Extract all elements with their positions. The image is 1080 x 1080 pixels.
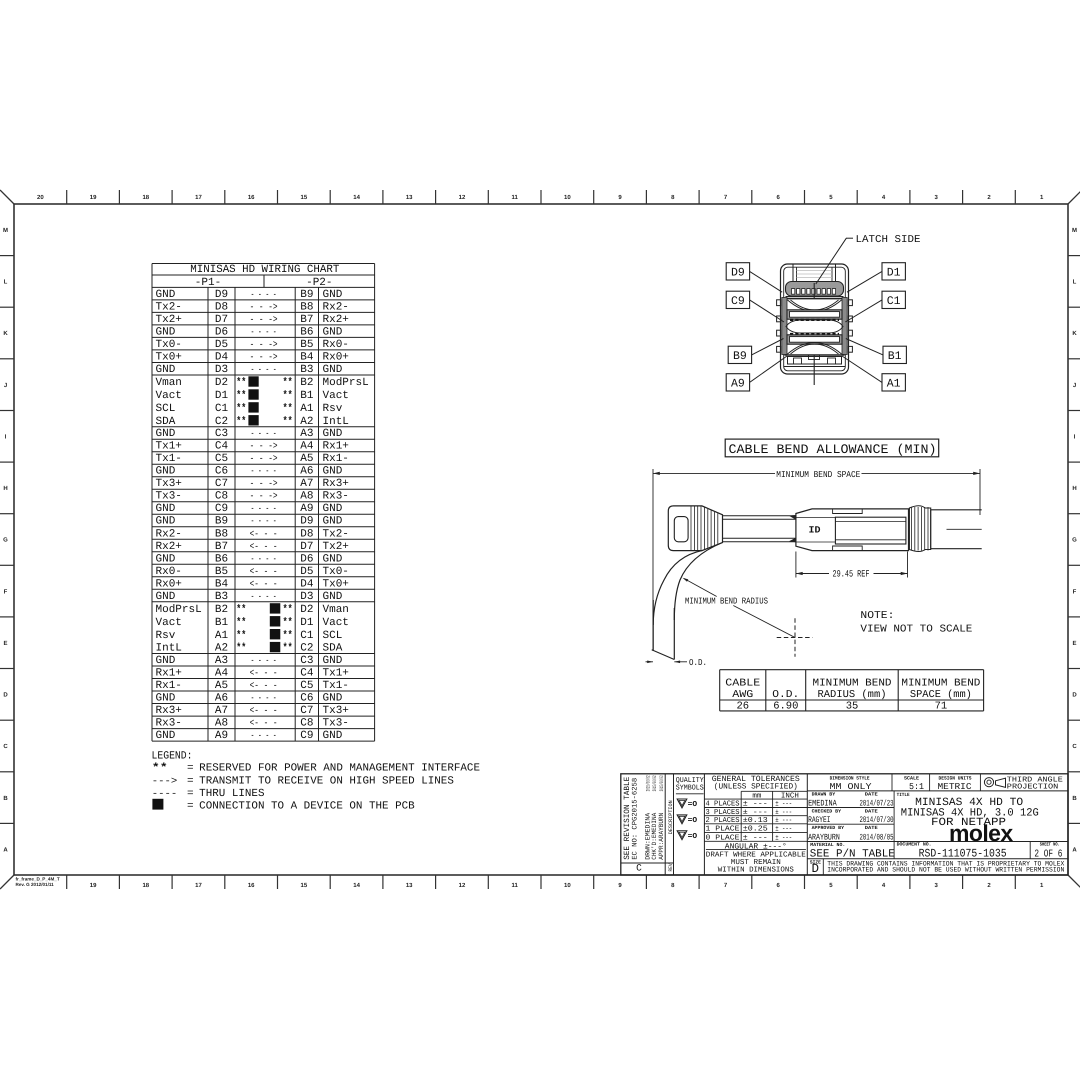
svg-text:GND: GND xyxy=(156,655,176,667)
svg-text:B3: B3 xyxy=(215,591,228,603)
svg-text:A2: A2 xyxy=(215,643,228,655)
svg-text:- - ->: - - -> xyxy=(250,340,278,351)
svg-text:B8: B8 xyxy=(215,528,228,540)
svg-text:19: 19 xyxy=(90,882,97,889)
svg-text:D2: D2 xyxy=(300,604,313,616)
svg-text:Vact: Vact xyxy=(156,390,182,402)
svg-text:11: 11 xyxy=(512,194,519,201)
svg-text:10: 10 xyxy=(564,194,571,201)
svg-text:- - ->: - - -> xyxy=(250,353,278,364)
svg-text:D1: D1 xyxy=(887,267,901,280)
svg-text:Vact: Vact xyxy=(156,617,182,629)
svg-text:B3: B3 xyxy=(300,364,313,376)
svg-text:GND: GND xyxy=(323,553,343,565)
svg-text:(UNLESS SPECIFIED): (UNLESS SPECIFIED) xyxy=(714,782,798,791)
svg-text:C3: C3 xyxy=(300,655,313,667)
svg-text:H: H xyxy=(1072,485,1076,492)
svg-text:GND: GND xyxy=(156,553,176,565)
svg-text:MINIMUM BEND SPACE: MINIMUM BEND SPACE xyxy=(776,470,860,480)
svg-text:**: ** xyxy=(236,390,246,402)
svg-text:C6: C6 xyxy=(215,466,228,478)
svg-text:C: C xyxy=(1072,743,1077,750)
svg-text:D7: D7 xyxy=(300,541,313,553)
svg-text:2014/07/23: 2014/07/23 xyxy=(860,798,894,808)
svg-text:- - - -: - - - - xyxy=(251,656,277,667)
svg-text:APPROVED BY: APPROVED BY xyxy=(812,825,845,831)
svg-text:A8: A8 xyxy=(300,491,313,503)
svg-text:**: ** xyxy=(152,763,168,775)
svg-text:**: ** xyxy=(283,403,293,415)
svg-text:D9: D9 xyxy=(731,267,745,280)
svg-text:D1: D1 xyxy=(215,390,229,402)
svg-text:B2: B2 xyxy=(300,377,313,389)
svg-text:B2: B2 xyxy=(215,604,228,616)
svg-text:A9: A9 xyxy=(300,503,313,515)
svg-text:29.45 REF: 29.45 REF xyxy=(833,569,870,580)
svg-text:A1: A1 xyxy=(887,378,901,391)
svg-text:- - ->: - - -> xyxy=(250,302,278,313)
svg-text:**: ** xyxy=(283,390,293,402)
svg-text:A5: A5 xyxy=(215,680,228,692)
svg-text:C9: C9 xyxy=(215,503,228,515)
svg-text:A6: A6 xyxy=(300,466,313,478)
svg-text:--->: ---> xyxy=(152,776,178,787)
svg-text:- - - -: - - - - xyxy=(251,429,277,440)
svg-text:2 OF 6: 2 OF 6 xyxy=(1034,849,1062,861)
svg-text:±0.13: ±0.13 xyxy=(743,816,769,825)
svg-text:18: 18 xyxy=(142,882,149,889)
svg-text:SCL: SCL xyxy=(156,403,176,415)
svg-text:B: B xyxy=(3,795,8,802)
svg-text:± ---: ± --- xyxy=(743,801,768,809)
svg-text:LEGEND:: LEGEND: xyxy=(152,750,193,762)
svg-text:2014/07/30: 2014/07/30 xyxy=(860,815,894,825)
svg-text:2015/06/02: 2015/06/02 xyxy=(652,775,658,791)
svg-text:<- - -: <- - - xyxy=(250,542,278,553)
svg-text:D: D xyxy=(812,862,820,876)
svg-text:Tx0+: Tx0+ xyxy=(156,352,182,364)
svg-text:B7: B7 xyxy=(215,541,228,553)
svg-text:- - - -: - - - - xyxy=(251,327,277,338)
svg-text:- - ->: - - -> xyxy=(250,442,278,453)
svg-text:O.D.: O.D. xyxy=(689,658,707,668)
svg-text:C1: C1 xyxy=(215,403,229,415)
svg-text:Tx1+: Tx1+ xyxy=(323,668,349,680)
svg-text:REV: REV xyxy=(668,863,674,872)
svg-text:Rsv: Rsv xyxy=(156,630,176,642)
svg-text:Tx3+: Tx3+ xyxy=(323,705,349,717)
svg-text:26: 26 xyxy=(736,701,749,713)
svg-text:M: M xyxy=(1072,227,1077,234)
svg-text:Rx2+: Rx2+ xyxy=(323,314,349,326)
svg-text:=: = xyxy=(187,763,194,775)
svg-text:GND: GND xyxy=(323,693,343,705)
svg-text:B9: B9 xyxy=(300,289,313,301)
svg-text:A1: A1 xyxy=(300,403,314,415)
svg-text:GND: GND xyxy=(323,428,343,440)
svg-text:DATE: DATE xyxy=(865,808,878,814)
svg-text:19: 19 xyxy=(90,194,97,201)
svg-text:Tx0+: Tx0+ xyxy=(323,578,349,590)
svg-text:GND: GND xyxy=(156,591,176,603)
svg-text:DRAWN BY: DRAWN BY xyxy=(812,792,836,798)
svg-text:2014/08/05: 2014/08/05 xyxy=(860,832,894,842)
svg-text:Rev. G 2012/01/11: Rev. G 2012/01/11 xyxy=(16,882,55,887)
svg-text:fr_frame_D_P_4M_T: fr_frame_D_P_4M_T xyxy=(16,877,60,882)
svg-text:- - - -: - - - - xyxy=(251,467,277,478)
svg-text:0 PLACE: 0 PLACE xyxy=(706,834,741,843)
svg-text:C8: C8 xyxy=(300,718,313,730)
svg-text:14: 14 xyxy=(353,882,360,889)
svg-text:CHECKED BY: CHECKED BY xyxy=(812,808,842,814)
svg-text:<- - -: <- - - xyxy=(250,579,278,590)
svg-text:D6: D6 xyxy=(300,553,313,565)
svg-text:1 PLACE: 1 PLACE xyxy=(706,825,741,834)
svg-text:Rx1-: Rx1- xyxy=(156,680,182,692)
svg-text:A: A xyxy=(3,846,8,853)
svg-text:Rx2-: Rx2- xyxy=(323,301,349,313)
svg-text:TRANSMIT TO RECEIVE ON HIGH SP: TRANSMIT TO RECEIVE ON HIGH SPEED LINES xyxy=(199,775,454,787)
svg-text:GND: GND xyxy=(323,730,343,742)
svg-text:ModPrsL: ModPrsL xyxy=(323,377,369,389)
svg-text:- - - -: - - - - xyxy=(251,554,277,565)
svg-text:17: 17 xyxy=(195,194,202,201)
svg-text:± ---: ± --- xyxy=(775,826,792,834)
svg-text:D5: D5 xyxy=(215,339,228,351)
svg-text:D: D xyxy=(1072,692,1077,699)
svg-text:RAGYEI: RAGYEI xyxy=(808,815,830,825)
svg-text:15: 15 xyxy=(301,882,308,889)
svg-text:D8: D8 xyxy=(300,528,313,540)
svg-text:DESIGN UNITS: DESIGN UNITS xyxy=(939,776,972,782)
svg-text:B4: B4 xyxy=(215,578,229,590)
svg-text:MATERIAL NO.: MATERIAL NO. xyxy=(810,842,845,848)
svg-text:11: 11 xyxy=(512,882,519,889)
svg-text:15: 15 xyxy=(301,194,308,201)
svg-text:B5: B5 xyxy=(300,339,313,351)
svg-text:C2: C2 xyxy=(215,416,228,428)
svg-text:- - - -: - - - - xyxy=(251,592,277,603)
svg-text:D6: D6 xyxy=(215,326,228,338)
svg-text:4 PLACES: 4 PLACES xyxy=(706,800,740,809)
svg-text:10: 10 xyxy=(564,882,571,889)
svg-text:IntL: IntL xyxy=(156,643,182,655)
svg-text:B: B xyxy=(1072,795,1077,802)
svg-text:EC NO: CPG2015-6258: EC NO: CPG2015-6258 xyxy=(632,778,640,860)
svg-text:GND: GND xyxy=(323,655,343,667)
svg-text:F: F xyxy=(1073,588,1077,595)
svg-text:EMEDINA: EMEDINA xyxy=(808,798,837,808)
svg-text:E: E xyxy=(1072,640,1076,647)
svg-text:- - - -: - - - - xyxy=(251,731,277,742)
svg-text:D4: D4 xyxy=(215,352,229,364)
svg-text:RSD-111075-1035: RSD-111075-1035 xyxy=(919,848,1007,861)
svg-text:C8: C8 xyxy=(215,491,228,503)
svg-text:± ---: ± --- xyxy=(775,835,792,843)
svg-text:MINIMUM BEND: MINIMUM BEND xyxy=(813,677,892,689)
svg-text:SYMBOLS: SYMBOLS xyxy=(676,784,704,793)
svg-text:**: ** xyxy=(236,377,246,389)
svg-text:C5: C5 xyxy=(215,453,228,465)
svg-text:INCORPORATED AND SHOULD NOT BE: INCORPORATED AND SHOULD NOT BE USED WITH… xyxy=(827,867,1064,875)
svg-text:Tx0-: Tx0- xyxy=(156,339,182,351)
svg-text:<- - -: <- - - xyxy=(250,719,278,730)
svg-text:<- - -: <- - - xyxy=(250,706,278,717)
svg-text:20: 20 xyxy=(37,194,44,201)
svg-text:WITHIN DIMENSIONS: WITHIN DIMENSIONS xyxy=(718,865,794,874)
svg-text:16: 16 xyxy=(248,882,255,889)
svg-text:- - ->: - - -> xyxy=(250,479,278,490)
svg-text:<- - -: <- - - xyxy=(250,567,278,578)
svg-text:NOTE:: NOTE: xyxy=(860,610,894,622)
svg-text:C7: C7 xyxy=(215,478,228,490)
svg-text:± ---: ± --- xyxy=(775,809,792,817)
svg-text:SCALE: SCALE xyxy=(904,776,919,782)
svg-text:C1: C1 xyxy=(887,295,901,308)
svg-text:GND: GND xyxy=(156,503,176,515)
svg-text:A3: A3 xyxy=(215,655,228,667)
svg-text:<- - -: <- - - xyxy=(250,669,278,680)
svg-text:CABLE BEND ALLOWANCE (MIN): CABLE BEND ALLOWANCE (MIN) xyxy=(729,442,937,457)
svg-text:A6: A6 xyxy=(215,693,228,705)
svg-text:Rx1+: Rx1+ xyxy=(156,668,182,680)
svg-text:C4: C4 xyxy=(215,441,229,453)
svg-text:D7: D7 xyxy=(215,314,228,326)
svg-text:GND: GND xyxy=(323,326,343,338)
svg-text:MINIMUM BEND: MINIMUM BEND xyxy=(901,677,980,689)
svg-text:±0.25: ±0.25 xyxy=(743,825,769,834)
svg-text:GND: GND xyxy=(323,591,343,603)
svg-text:B8: B8 xyxy=(300,301,313,313)
svg-text:ID: ID xyxy=(809,524,821,535)
svg-text:A: A xyxy=(1072,846,1077,853)
svg-text:D3: D3 xyxy=(300,591,313,603)
svg-text:A4: A4 xyxy=(215,668,229,680)
svg-text:GND: GND xyxy=(156,289,176,301)
svg-text:B4: B4 xyxy=(300,352,314,364)
svg-text:2015/06/03: 2015/06/03 xyxy=(659,775,665,791)
svg-text:C9: C9 xyxy=(731,295,745,308)
svg-text:Rx1+: Rx1+ xyxy=(323,441,349,453)
svg-text:SCL: SCL xyxy=(323,630,343,642)
svg-text:TITLE: TITLE xyxy=(897,792,910,798)
svg-text:GND: GND xyxy=(323,466,343,478)
svg-text:D: D xyxy=(3,692,8,699)
svg-text:71: 71 xyxy=(935,701,948,713)
svg-text:Tx2-: Tx2- xyxy=(323,528,349,540)
svg-text:A9: A9 xyxy=(731,378,745,391)
svg-text:Vact: Vact xyxy=(323,390,349,402)
svg-text:mm: mm xyxy=(752,793,762,801)
svg-text:12: 12 xyxy=(459,882,466,889)
svg-text:APPR:ARAYBURN: APPR:ARAYBURN xyxy=(658,813,665,860)
svg-text:D4: D4 xyxy=(300,578,314,590)
svg-text:A9: A9 xyxy=(215,730,228,742)
svg-text:K: K xyxy=(1072,330,1077,337)
svg-text:**: ** xyxy=(283,617,293,629)
svg-text:13: 13 xyxy=(406,882,413,889)
svg-text:Tx1-: Tx1- xyxy=(323,680,349,692)
svg-text:MINISAS HD WIRING CHART: MINISAS HD WIRING CHART xyxy=(190,264,339,276)
svg-text:H: H xyxy=(3,485,7,492)
svg-text:L: L xyxy=(1073,279,1077,286)
svg-text:C4: C4 xyxy=(300,668,314,680)
svg-text:Tx2+: Tx2+ xyxy=(156,314,182,326)
svg-text:Rx0+: Rx0+ xyxy=(156,578,182,590)
svg-text:C6: C6 xyxy=(300,693,313,705)
svg-text:DATE: DATE xyxy=(865,825,878,831)
svg-text:GND: GND xyxy=(323,364,343,376)
svg-text:A4: A4 xyxy=(300,441,314,453)
svg-text:Tx1-: Tx1- xyxy=(156,453,182,465)
svg-text:DIMENSION STYLE: DIMENSION STYLE xyxy=(830,776,870,782)
svg-text:**: ** xyxy=(236,403,246,415)
svg-text:C7: C7 xyxy=(300,705,313,717)
svg-text:- - - -: - - - - xyxy=(251,694,277,705)
svg-text:O.D.: O.D. xyxy=(772,689,799,701)
svg-text:=: = xyxy=(187,788,194,800)
svg-text:Vman: Vman xyxy=(323,604,349,616)
svg-text:2 PLACES: 2 PLACES xyxy=(706,816,740,825)
svg-text:E: E xyxy=(3,640,7,647)
svg-text:=: = xyxy=(187,801,194,813)
svg-text:± ---: ± --- xyxy=(743,835,768,843)
svg-text:THRU LINES: THRU LINES xyxy=(199,788,264,800)
svg-text:Rx0-: Rx0- xyxy=(323,339,349,351)
svg-text:=: = xyxy=(187,775,194,787)
svg-text:- - - -: - - - - xyxy=(251,290,277,301)
svg-text:ANGULAR ±---°: ANGULAR ±---° xyxy=(725,842,787,851)
svg-text:B5: B5 xyxy=(215,566,228,578)
svg-text:METRIC: METRIC xyxy=(938,782,973,792)
svg-text:**: ** xyxy=(283,416,293,428)
svg-text:GND: GND xyxy=(156,730,176,742)
svg-text:- - - -: - - - - xyxy=(251,504,277,515)
svg-text:C: C xyxy=(636,863,642,874)
svg-text:Rsv: Rsv xyxy=(323,403,343,415)
svg-text:PROJECTION: PROJECTION xyxy=(1007,783,1059,792)
svg-text:Tx2+: Tx2+ xyxy=(323,541,349,553)
svg-text:F: F xyxy=(4,588,8,595)
svg-text:DESCRIPTION: DESCRIPTION xyxy=(668,800,674,834)
svg-text:D9: D9 xyxy=(215,289,228,301)
svg-text:Rx1-: Rx1- xyxy=(323,453,349,465)
svg-text:C3: C3 xyxy=(215,428,228,440)
svg-text:C5: C5 xyxy=(300,680,313,692)
svg-text:A8: A8 xyxy=(215,718,228,730)
svg-text:D8: D8 xyxy=(215,301,228,313)
svg-text:A1: A1 xyxy=(215,630,229,642)
svg-text:<- - -: <- - - xyxy=(250,681,278,692)
svg-text:A7: A7 xyxy=(300,478,313,490)
svg-text:L: L xyxy=(4,279,8,286)
svg-text:B6: B6 xyxy=(215,553,228,565)
svg-text:C: C xyxy=(3,743,8,750)
svg-text:Rx0+: Rx0+ xyxy=(323,352,349,364)
svg-text:B6: B6 xyxy=(300,326,313,338)
svg-text:Tx3+: Tx3+ xyxy=(156,478,182,490)
svg-text:MINIMUM BEND RADIUS: MINIMUM BEND RADIUS xyxy=(685,597,768,607)
svg-text:17: 17 xyxy=(195,882,202,889)
svg-text:RADIUS (mm): RADIUS (mm) xyxy=(818,689,887,701)
svg-text:3 PLACES: 3 PLACES xyxy=(706,808,740,817)
svg-text:molex: molex xyxy=(949,820,1013,846)
svg-text:K: K xyxy=(3,330,8,337)
svg-text:=O: =O xyxy=(688,816,698,825)
svg-text:18: 18 xyxy=(142,194,149,201)
svg-text:DATE: DATE xyxy=(865,792,878,798)
svg-text:B1: B1 xyxy=(215,617,229,629)
svg-text:B9: B9 xyxy=(733,350,747,363)
svg-text:B7: B7 xyxy=(300,314,313,326)
svg-text:D1: D1 xyxy=(300,617,314,629)
svg-text:A5: A5 xyxy=(300,453,313,465)
svg-text:14: 14 xyxy=(353,194,360,201)
svg-text:± ---: ± --- xyxy=(775,801,792,809)
svg-text:13: 13 xyxy=(406,194,413,201)
svg-text:- - ->: - - -> xyxy=(250,492,278,503)
svg-text:± ---: ± --- xyxy=(775,817,792,825)
svg-text:5:1: 5:1 xyxy=(909,782,924,792)
svg-text:Vman: Vman xyxy=(156,377,182,389)
svg-text:LATCH SIDE: LATCH SIDE xyxy=(856,234,921,246)
svg-text:GND: GND xyxy=(156,428,176,440)
svg-text:Rx3-: Rx3- xyxy=(156,718,182,730)
svg-text:Tx1+: Tx1+ xyxy=(156,441,182,453)
svg-text:A3: A3 xyxy=(300,428,313,440)
svg-text:Vact: Vact xyxy=(323,617,349,629)
svg-text:- - ->: - - -> xyxy=(250,454,278,465)
svg-text:**: ** xyxy=(283,604,293,616)
svg-text:Rx3+: Rx3+ xyxy=(156,705,182,717)
svg-text:**: ** xyxy=(236,617,246,629)
svg-text:ARAYBURN: ARAYBURN xyxy=(808,832,840,842)
svg-text:GND: GND xyxy=(156,466,176,478)
svg-text:C9: C9 xyxy=(300,730,313,742)
svg-text:AWG: AWG xyxy=(732,689,753,701)
svg-text:B1: B1 xyxy=(300,390,314,402)
svg-text:SPACE (mm): SPACE (mm) xyxy=(910,689,972,701)
svg-text:GND: GND xyxy=(156,326,176,338)
svg-text:SHEET NO.: SHEET NO. xyxy=(1040,841,1060,847)
svg-text:D9: D9 xyxy=(300,516,313,528)
svg-text:16: 16 xyxy=(248,194,255,201)
svg-text:Rx0-: Rx0- xyxy=(156,566,182,578)
svg-text:GND: GND xyxy=(156,516,176,528)
svg-text:GND: GND xyxy=(323,516,343,528)
svg-text:=O: =O xyxy=(688,832,698,841)
svg-text:M: M xyxy=(3,227,8,234)
svg-text:SDA: SDA xyxy=(156,416,176,428)
svg-text:GND: GND xyxy=(323,503,343,515)
svg-text:GND: GND xyxy=(323,289,343,301)
svg-text:----: ---- xyxy=(152,789,178,800)
svg-text:CONNECTION TO A DEVICE ON THE: CONNECTION TO A DEVICE ON THE PCB xyxy=(199,801,415,813)
svg-text:Rx3+: Rx3+ xyxy=(323,478,349,490)
svg-text:J: J xyxy=(4,382,7,389)
svg-text:GND: GND xyxy=(156,693,176,705)
svg-text:RESERVED FOR POWER AND MANAGEM: RESERVED FOR POWER AND MANAGEMENT INTERF… xyxy=(199,763,480,775)
svg-text:**: ** xyxy=(236,416,246,428)
svg-text:12: 12 xyxy=(459,194,466,201)
svg-text:VIEW NOT TO SCALE: VIEW NOT TO SCALE xyxy=(860,624,972,636)
svg-text:Tx0-: Tx0- xyxy=(323,566,349,578)
svg-text:Rx3-: Rx3- xyxy=(323,491,349,503)
svg-text:D3: D3 xyxy=(215,364,228,376)
svg-text:Tx3-: Tx3- xyxy=(156,491,182,503)
svg-text:Tx3-: Tx3- xyxy=(323,718,349,730)
svg-text:ModPrsL: ModPrsL xyxy=(156,604,202,616)
